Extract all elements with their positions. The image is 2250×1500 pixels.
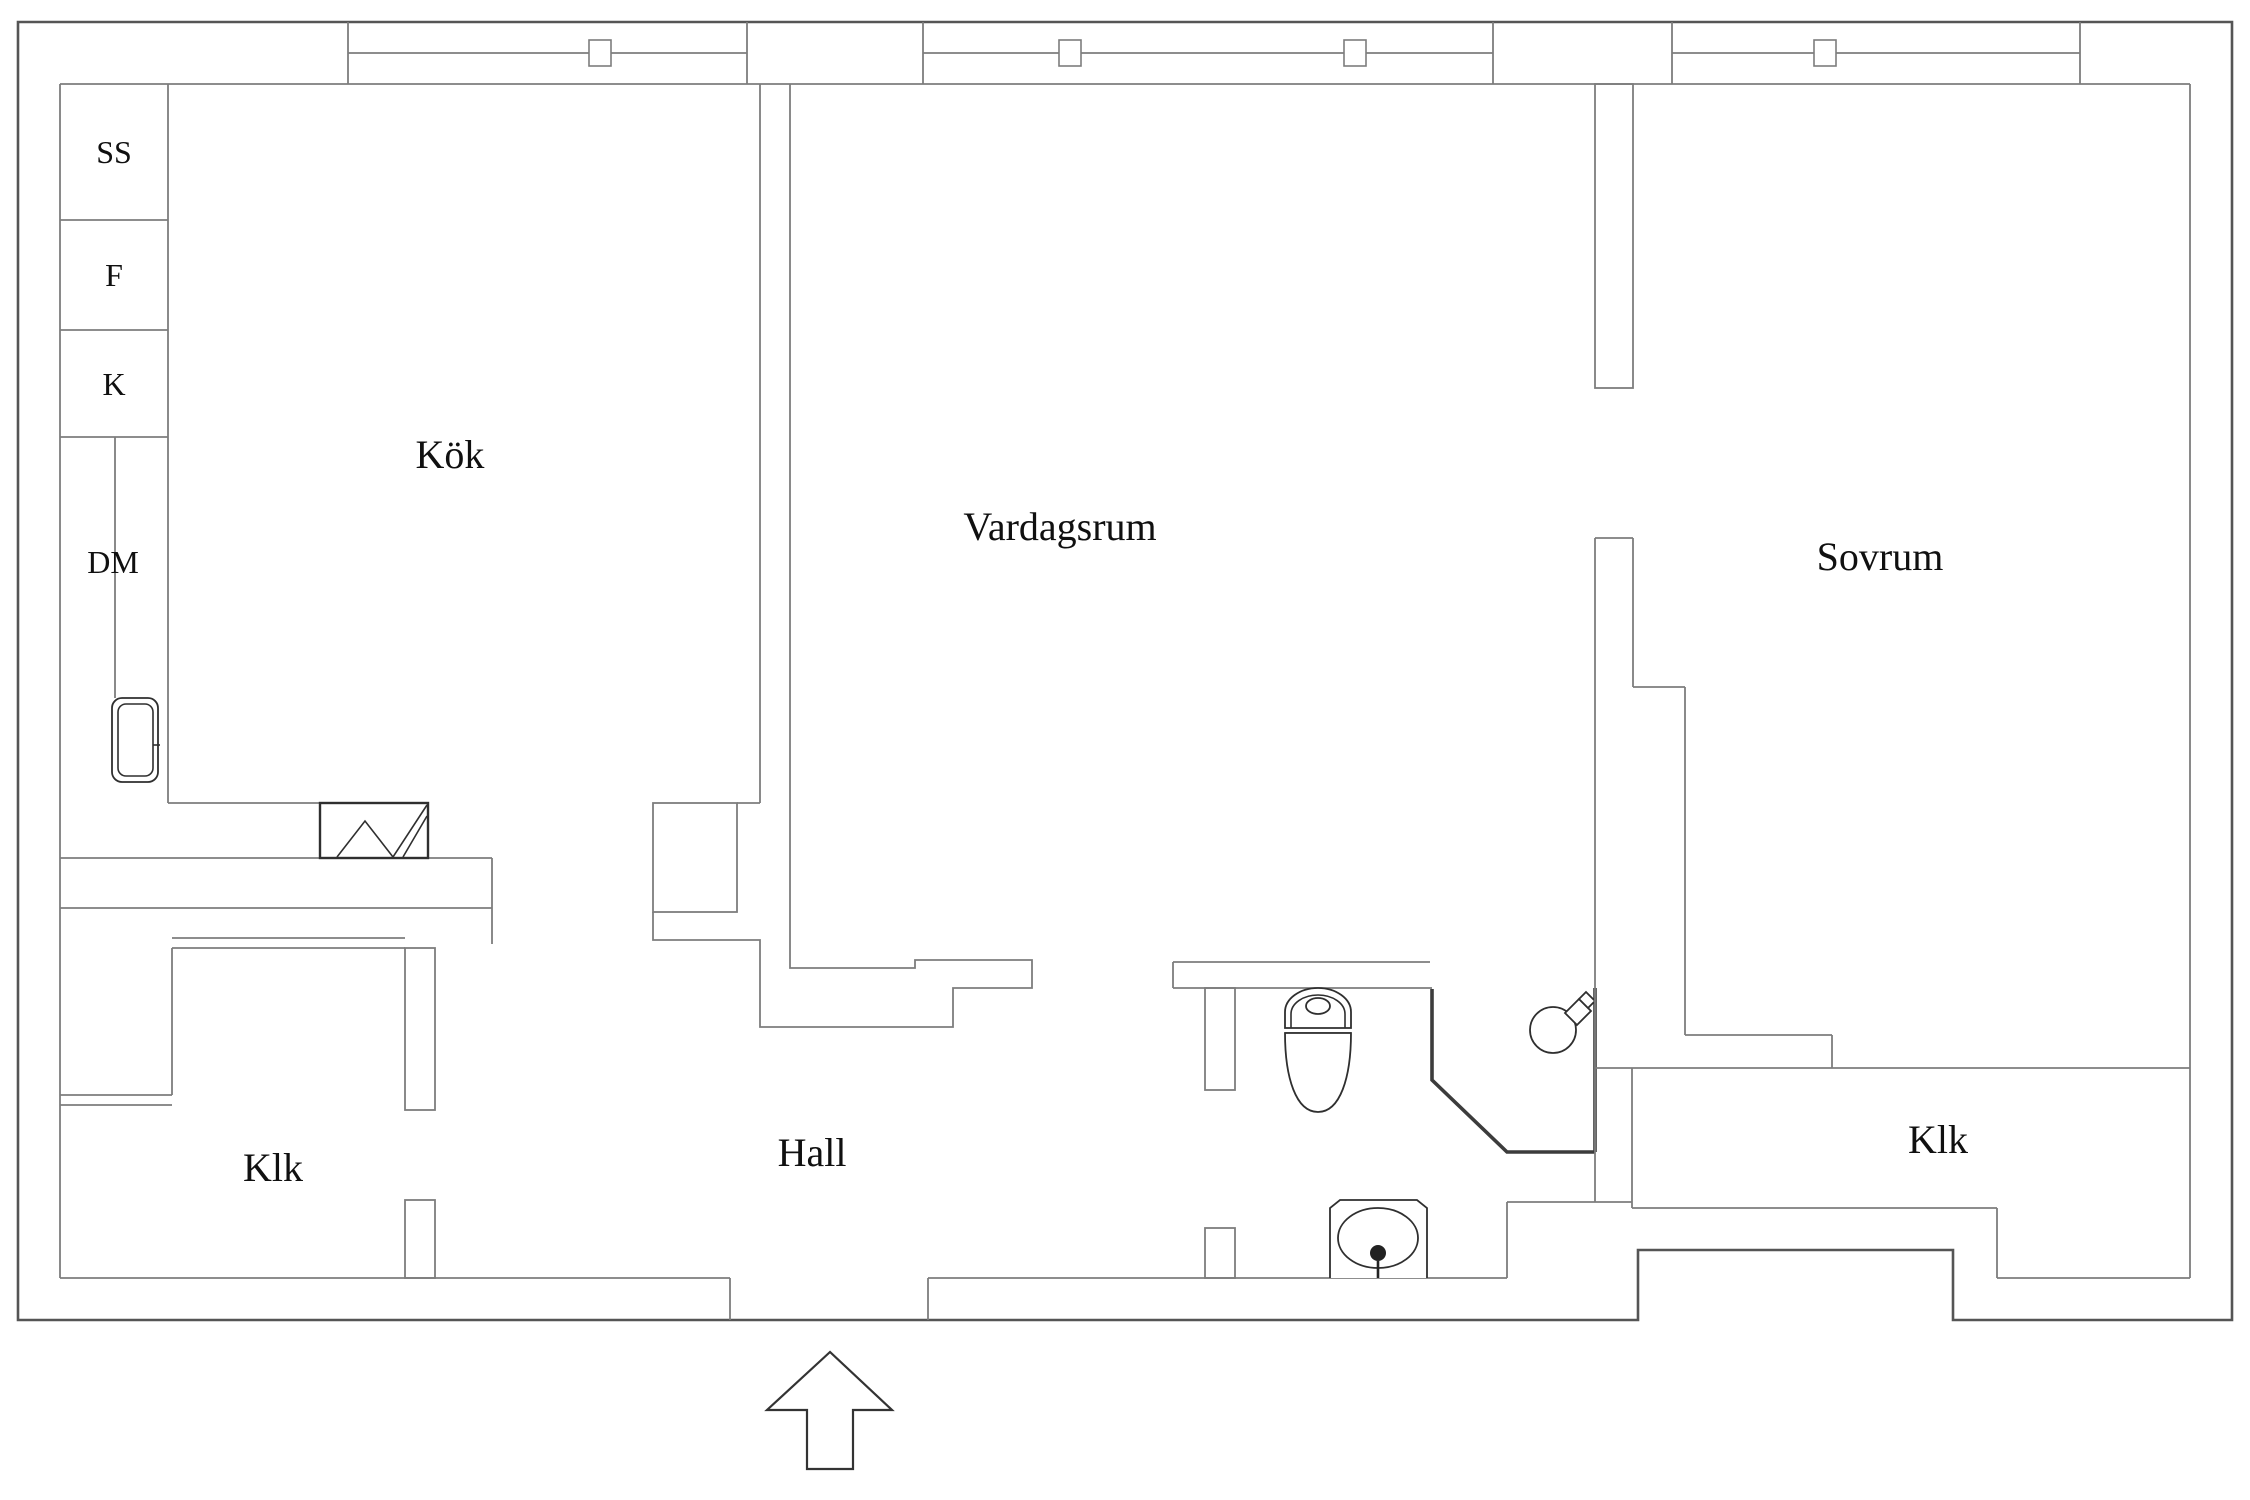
divider-walls bbox=[653, 84, 1032, 1027]
room-label-closet-right: Klk bbox=[1908, 1117, 1968, 1162]
outer-walls bbox=[18, 22, 2232, 1320]
window-mullion-icon bbox=[1814, 40, 1836, 66]
window-mullion-icon bbox=[1344, 40, 1366, 66]
room-label-kitchen: Kök bbox=[416, 432, 485, 477]
kitchen-sink-icon bbox=[112, 698, 160, 782]
inner-walls bbox=[60, 84, 2190, 1320]
entrance bbox=[730, 1278, 928, 1469]
room-label-living: Vardagsrum bbox=[963, 504, 1156, 549]
shower-icon bbox=[1432, 988, 1595, 1152]
window-mullion-icon bbox=[589, 40, 611, 66]
appliance-label-ss: SS bbox=[96, 134, 132, 170]
floor-plan-page: Kök Vardagsrum Sovrum Hall Klk Klk SS F … bbox=[0, 0, 2250, 1500]
appliance-label-k: K bbox=[102, 366, 125, 402]
room-label-hall: Hall bbox=[778, 1130, 847, 1175]
washbasin-icon bbox=[1330, 1200, 1427, 1278]
room-label-closet-left: Klk bbox=[243, 1145, 303, 1190]
entrance-arrow-icon bbox=[767, 1352, 892, 1469]
windows bbox=[348, 22, 2080, 84]
appliance-label-dm: DM bbox=[87, 544, 139, 580]
window-mullion-icon bbox=[1059, 40, 1081, 66]
stove-icon bbox=[320, 803, 428, 858]
closet-left-walls bbox=[60, 938, 435, 1278]
room-label-bedroom: Sovrum bbox=[1817, 534, 1944, 579]
floor-plan-drawing: Kök Vardagsrum Sovrum Hall Klk Klk SS F … bbox=[0, 0, 2250, 1500]
appliance-label-f: F bbox=[105, 257, 123, 293]
toilet-icon bbox=[1285, 988, 1351, 1112]
bedroom-walls bbox=[1595, 84, 2190, 1208]
